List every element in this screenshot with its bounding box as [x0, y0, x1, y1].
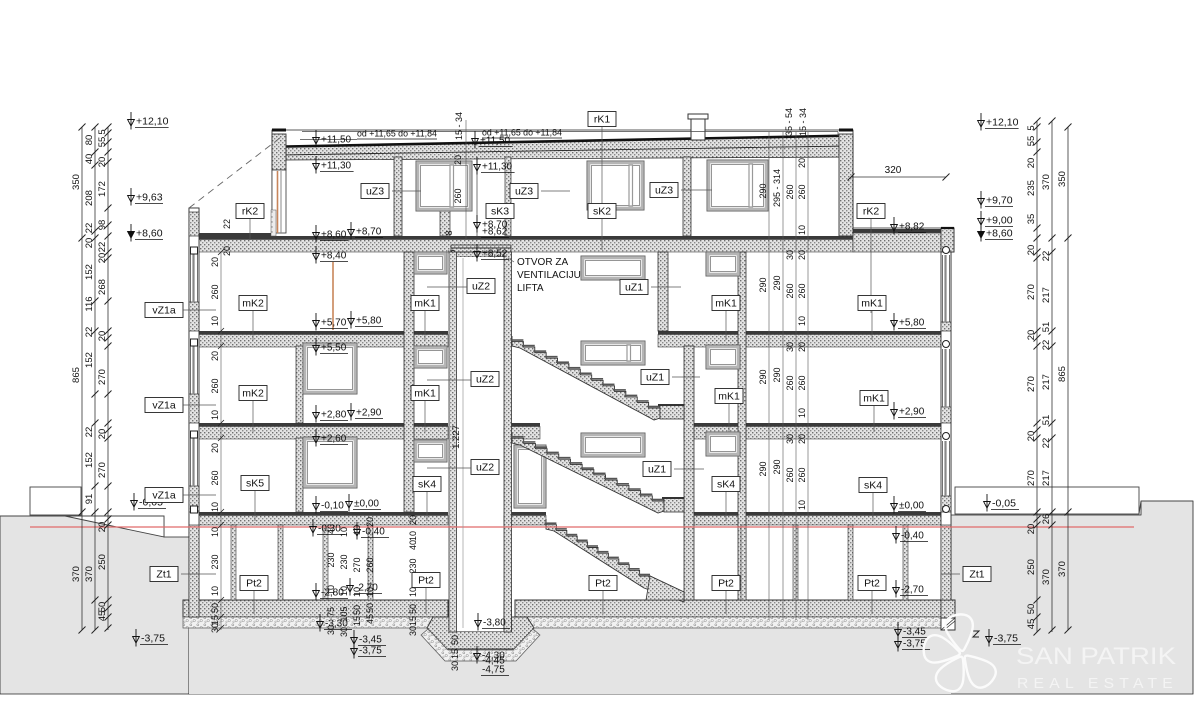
svg-text:+5,70: +5,70 — [321, 318, 347, 329]
svg-text:mK1: mK1 — [861, 298, 883, 310]
svg-text:+2,90: +2,90 — [356, 408, 382, 419]
svg-text:80: 80 — [84, 135, 95, 146]
svg-text:VENTILACIJU: VENTILACIJU — [517, 270, 581, 281]
svg-text:SAN PATRIK: SAN PATRIK — [1016, 643, 1176, 670]
svg-text:230: 230 — [339, 554, 349, 569]
svg-text:217: 217 — [1041, 470, 1052, 486]
svg-text:22: 22 — [222, 219, 232, 229]
svg-text:+9,70: +9,70 — [986, 195, 1013, 207]
svg-text:290: 290 — [772, 459, 782, 474]
svg-text:-0,30: -0,30 — [318, 524, 341, 535]
svg-text:51: 51 — [1041, 415, 1052, 426]
svg-text:+12,10: +12,10 — [986, 117, 1019, 129]
svg-text:45: 45 — [365, 614, 375, 624]
svg-text:sK4: sK4 — [864, 480, 882, 492]
svg-text:+2,60: +2,60 — [321, 434, 347, 445]
svg-text:217: 217 — [1041, 287, 1052, 303]
svg-text:270: 270 — [97, 369, 108, 385]
svg-text:260: 260 — [785, 283, 795, 298]
svg-text:50: 50 — [450, 635, 460, 645]
svg-text:22: 22 — [84, 223, 95, 234]
svg-text:290: 290 — [758, 369, 768, 384]
svg-text:45: 45 — [1026, 619, 1037, 630]
svg-text:50: 50 — [408, 604, 418, 614]
svg-text:152: 152 — [84, 452, 95, 468]
svg-text:290: 290 — [772, 367, 782, 382]
svg-text:20: 20 — [453, 155, 463, 165]
svg-text:295 - 314: 295 - 314 — [772, 169, 782, 207]
svg-text:10: 10 — [408, 587, 418, 597]
svg-text:vZ1a: vZ1a — [152, 490, 176, 502]
svg-text:270: 270 — [97, 462, 108, 478]
svg-text:260: 260 — [453, 188, 463, 203]
svg-text:-3,75: -3,75 — [359, 646, 382, 657]
svg-text:260: 260 — [210, 284, 220, 299]
svg-text:+11,50: +11,50 — [321, 135, 352, 146]
svg-text:290: 290 — [758, 461, 768, 476]
svg-text:+2,90: +2,90 — [899, 407, 925, 418]
svg-text:10: 10 — [210, 527, 220, 537]
svg-text:-0,40: -0,40 — [362, 527, 385, 538]
svg-text:Pt2: Pt2 — [418, 575, 434, 587]
svg-text:10: 10 — [210, 586, 220, 596]
svg-text:208: 208 — [84, 190, 95, 206]
svg-text:50: 50 — [210, 603, 220, 613]
svg-text:Zt1: Zt1 — [156, 569, 171, 581]
svg-text:35: 35 — [1026, 214, 1037, 225]
svg-text:370: 370 — [1041, 569, 1052, 585]
svg-text:mK1: mK1 — [863, 393, 885, 405]
svg-text:20: 20 — [1026, 431, 1037, 442]
svg-text:260: 260 — [797, 467, 807, 482]
svg-text:vZ1a: vZ1a — [152, 400, 176, 412]
svg-text:270: 270 — [1026, 284, 1037, 300]
svg-text:22: 22 — [84, 427, 95, 438]
svg-text:10: 10 — [797, 500, 807, 510]
svg-text:-0,05: -0,05 — [992, 498, 1016, 510]
svg-text:1.227: 1.227 — [451, 425, 462, 449]
svg-text:od +11,65 do +11,84: od +11,65 do +11,84 — [357, 129, 437, 139]
svg-text:270: 270 — [352, 557, 362, 572]
svg-text:uZ1: uZ1 — [646, 372, 664, 384]
svg-text:20: 20 — [97, 331, 108, 342]
svg-text:350: 350 — [1057, 171, 1068, 187]
svg-text:Pt2: Pt2 — [246, 578, 262, 590]
svg-text:30: 30 — [210, 623, 220, 633]
svg-text:230: 230 — [408, 558, 418, 573]
svg-text:290: 290 — [758, 183, 768, 198]
svg-text:-3,75: -3,75 — [141, 633, 165, 645]
svg-text:sK3: sK3 — [491, 206, 509, 218]
svg-text:20: 20 — [97, 429, 108, 440]
svg-text:91: 91 — [84, 494, 95, 505]
svg-text:+8,60: +8,60 — [321, 230, 347, 241]
svg-text:20: 20 — [1026, 330, 1037, 341]
svg-text:260: 260 — [785, 375, 795, 390]
svg-text:75: 75 — [326, 607, 336, 617]
svg-text:20: 20 — [365, 517, 375, 527]
svg-text:20: 20 — [408, 515, 418, 525]
svg-text:±0,00: ±0,00 — [899, 501, 924, 512]
svg-text:15: 15 — [450, 649, 460, 659]
svg-text:230: 230 — [210, 554, 220, 569]
svg-text:+9,00: +9,00 — [986, 215, 1013, 227]
svg-text:Zt1: Zt1 — [969, 569, 984, 581]
svg-text:15 - 34: 15 - 34 — [798, 108, 808, 136]
svg-text:260: 260 — [785, 184, 795, 199]
svg-text:20: 20 — [210, 257, 220, 267]
svg-text:mK1: mK1 — [718, 391, 740, 403]
svg-text:mK1: mK1 — [414, 298, 436, 310]
svg-text:+8,70: +8,70 — [356, 227, 382, 238]
svg-text:235: 235 — [1026, 180, 1037, 196]
svg-text:-3,30: -3,30 — [325, 619, 348, 630]
svg-text:mK1: mK1 — [715, 298, 737, 310]
svg-text:20: 20 — [97, 253, 108, 264]
svg-text:20: 20 — [97, 157, 108, 168]
svg-text:290: 290 — [772, 275, 782, 290]
svg-text:50: 50 — [1026, 604, 1037, 615]
svg-text:15: 15 — [408, 616, 418, 626]
svg-text:116: 116 — [84, 296, 95, 311]
svg-text:sK4: sK4 — [418, 479, 436, 491]
svg-text:50: 50 — [352, 605, 362, 615]
svg-text:10: 10 — [210, 502, 220, 512]
svg-text:+12,10: +12,10 — [136, 116, 169, 128]
svg-text:-3,45: -3,45 — [359, 635, 382, 646]
svg-text:45: 45 — [97, 611, 108, 622]
svg-text:+5,80: +5,80 — [356, 316, 382, 327]
svg-text:uZ3: uZ3 — [655, 185, 673, 197]
svg-text:51: 51 — [1041, 322, 1052, 333]
svg-text:+8,60: +8,60 — [986, 228, 1013, 240]
svg-text:Pt2: Pt2 — [864, 578, 880, 590]
svg-text:-3,80: -3,80 — [483, 618, 506, 629]
svg-text:152: 152 — [84, 352, 95, 368]
svg-text:15 - 34: 15 - 34 — [454, 112, 464, 140]
svg-text:320: 320 — [885, 165, 902, 176]
svg-text:20: 20 — [210, 443, 220, 453]
svg-text:REAL ESTATE: REAL ESTATE — [1017, 675, 1178, 692]
svg-text:mK1: mK1 — [414, 388, 436, 400]
svg-text:250: 250 — [97, 554, 108, 570]
svg-text:10: 10 — [797, 316, 807, 326]
svg-text:uZ3: uZ3 — [366, 186, 384, 198]
svg-text:370: 370 — [71, 566, 82, 582]
svg-text:260: 260 — [785, 467, 795, 482]
svg-text:rK2: rK2 — [863, 206, 880, 218]
svg-text:370: 370 — [1041, 174, 1052, 190]
svg-text:-2,70: -2,70 — [901, 585, 924, 596]
svg-text:350: 350 — [71, 174, 82, 190]
svg-text:10: 10 — [210, 316, 220, 326]
svg-text:20: 20 — [1026, 158, 1037, 169]
svg-text:-2,80: -2,80 — [321, 588, 344, 599]
svg-text:172: 172 — [97, 181, 108, 197]
svg-text:20: 20 — [797, 158, 807, 168]
svg-text:20: 20 — [1026, 524, 1037, 535]
svg-text:5: 5 — [97, 129, 108, 134]
svg-text:40: 40 — [84, 154, 95, 165]
svg-text:22: 22 — [84, 327, 95, 338]
svg-text:10: 10 — [210, 410, 220, 420]
svg-text:270: 270 — [1026, 376, 1037, 392]
svg-text:uZ2: uZ2 — [472, 281, 490, 293]
svg-text:20: 20 — [797, 250, 807, 260]
svg-text:15: 15 — [352, 616, 362, 626]
svg-text:20: 20 — [797, 342, 807, 352]
svg-text:+5,80: +5,80 — [899, 318, 925, 329]
svg-text:20: 20 — [222, 246, 232, 256]
svg-text:uZ3: uZ3 — [515, 186, 533, 198]
svg-text:250: 250 — [1026, 559, 1037, 575]
svg-text:-2,70: -2,70 — [355, 583, 378, 594]
svg-text:sK4: sK4 — [717, 479, 735, 491]
svg-text:260: 260 — [797, 184, 807, 199]
svg-text:+8,52: +8,52 — [482, 249, 508, 260]
svg-text:uZ1: uZ1 — [648, 464, 666, 476]
svg-text:370: 370 — [84, 566, 95, 582]
svg-text:10: 10 — [408, 531, 418, 541]
svg-text:uZ1: uZ1 — [625, 282, 643, 294]
svg-text:26: 26 — [1041, 514, 1052, 525]
svg-text:+8,40: +8,40 — [321, 251, 347, 262]
svg-text:+5,50: +5,50 — [321, 343, 347, 354]
svg-text:LIFTA: LIFTA — [517, 283, 544, 294]
svg-text:40: 40 — [408, 540, 418, 550]
svg-text:-3,75: -3,75 — [994, 633, 1018, 645]
svg-text:217: 217 — [1041, 374, 1052, 390]
svg-text:10: 10 — [797, 408, 807, 418]
svg-text:mK2: mK2 — [242, 298, 264, 310]
svg-text:5: 5 — [1026, 125, 1037, 130]
svg-text:35 - 54: 35 - 54 — [784, 108, 794, 136]
svg-text:OTVOR ZA: OTVOR ZA — [517, 257, 568, 268]
svg-text:vZ1a: vZ1a — [152, 305, 176, 317]
svg-text:+11,30: +11,30 — [321, 161, 352, 172]
svg-text:+8,82: +8,82 — [899, 222, 925, 233]
svg-text:98: 98 — [97, 220, 108, 231]
svg-text:-0,10: -0,10 — [321, 501, 344, 512]
svg-text:30: 30 — [785, 250, 795, 260]
svg-text:30: 30 — [785, 342, 795, 352]
svg-text:230: 230 — [326, 552, 336, 567]
svg-text:370: 370 — [1057, 561, 1068, 577]
svg-text:sK5: sK5 — [246, 478, 264, 490]
svg-text:22: 22 — [1041, 251, 1052, 262]
svg-text:22: 22 — [1041, 340, 1052, 351]
svg-text:+8,62: +8,62 — [482, 227, 508, 238]
svg-text:-0,40: -0,40 — [901, 531, 924, 542]
svg-text:sK2: sK2 — [593, 206, 611, 218]
svg-text:uZ2: uZ2 — [476, 462, 494, 474]
svg-text:+11,50: +11,50 — [480, 136, 511, 147]
svg-text:20: 20 — [210, 351, 220, 361]
svg-text:mK2: mK2 — [242, 388, 264, 400]
svg-text:+8,60: +8,60 — [136, 228, 163, 240]
svg-text:-3,45: -3,45 — [903, 627, 926, 638]
svg-text:268: 268 — [97, 279, 108, 295]
svg-text:rK2: rK2 — [242, 206, 259, 218]
svg-text:260: 260 — [210, 378, 220, 393]
svg-text:55: 55 — [97, 137, 108, 148]
svg-text:10: 10 — [797, 225, 807, 235]
svg-text:270: 270 — [1026, 470, 1037, 486]
svg-text:290: 290 — [758, 277, 768, 292]
svg-text:260: 260 — [797, 283, 807, 298]
svg-text:50: 50 — [97, 602, 108, 613]
svg-text:865: 865 — [1057, 366, 1068, 382]
svg-text:20: 20 — [1026, 245, 1037, 256]
svg-text:260: 260 — [797, 375, 807, 390]
svg-text:260: 260 — [365, 557, 375, 572]
svg-text:+11,30: +11,30 — [482, 162, 513, 173]
svg-text:55: 55 — [1026, 136, 1037, 147]
svg-text:30: 30 — [450, 661, 460, 671]
svg-text:±0,00: ±0,00 — [354, 499, 379, 510]
svg-text:rK1: rK1 — [594, 114, 611, 126]
svg-text:30: 30 — [785, 434, 795, 444]
svg-text:+9,63: +9,63 — [136, 192, 163, 204]
svg-text:-4,75: -4,75 — [482, 665, 505, 676]
svg-text:50: 50 — [365, 603, 375, 613]
svg-text:20: 20 — [97, 522, 108, 533]
svg-text:152: 152 — [84, 264, 95, 280]
svg-text:uZ2: uZ2 — [476, 374, 494, 386]
svg-text:+2,80: +2,80 — [321, 410, 347, 421]
svg-text:20: 20 — [797, 434, 807, 444]
svg-text:22: 22 — [97, 242, 108, 253]
svg-text:865: 865 — [71, 367, 82, 383]
svg-text:8: 8 — [444, 230, 454, 235]
svg-text:Pt2: Pt2 — [595, 578, 611, 590]
svg-text:30: 30 — [408, 626, 418, 636]
svg-text:20: 20 — [84, 238, 95, 249]
svg-text:22: 22 — [1041, 438, 1052, 449]
svg-text:Pt2: Pt2 — [718, 578, 734, 590]
svg-text:260: 260 — [210, 470, 220, 485]
